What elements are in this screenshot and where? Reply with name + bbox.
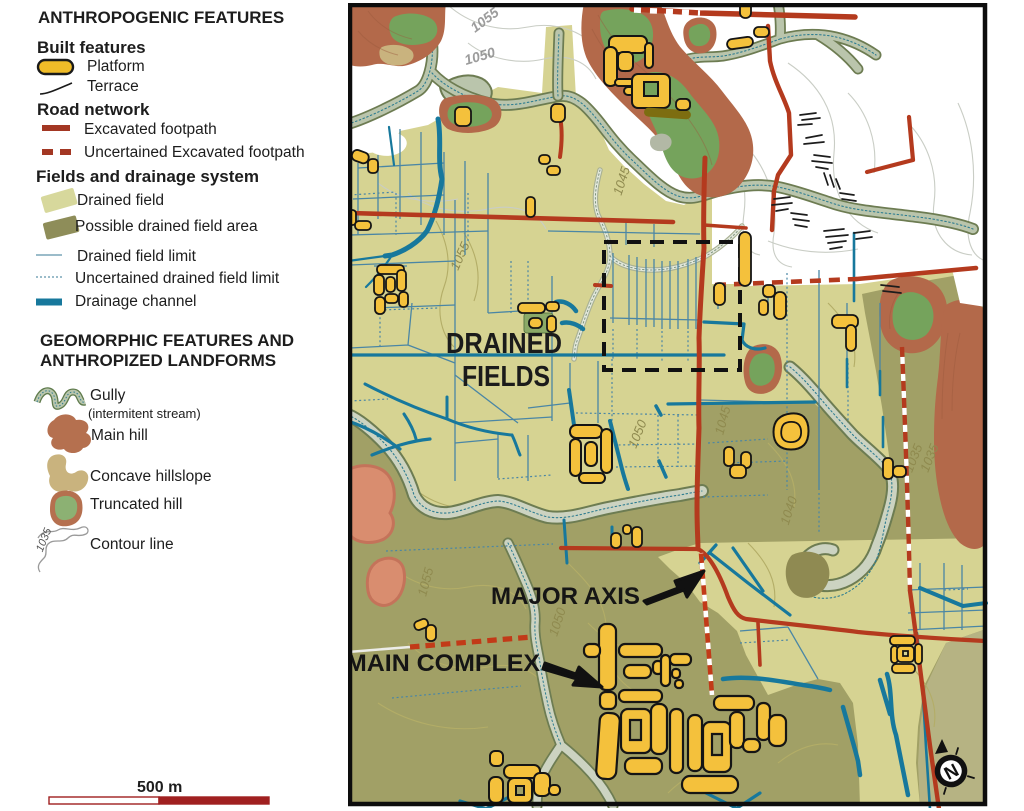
- svg-text:MAIN COMPLEX: MAIN COMPLEX: [348, 650, 540, 677]
- svg-text:FIELDS: FIELDS: [462, 361, 550, 393]
- svg-text:1035: 1035: [34, 526, 55, 554]
- svg-text:DRAINED: DRAINED: [446, 328, 562, 360]
- svg-text:MAJOR AXIS: MAJOR AXIS: [491, 583, 640, 610]
